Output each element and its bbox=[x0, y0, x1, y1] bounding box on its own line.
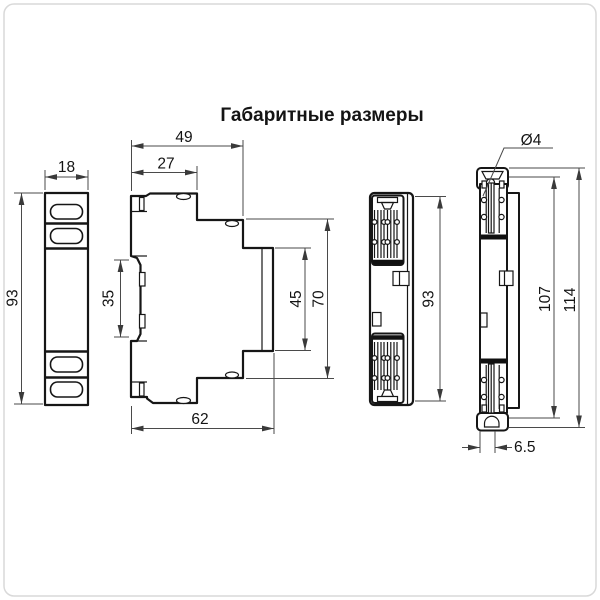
dim-label-70: 70 bbox=[311, 290, 328, 308]
terminal-slot bbox=[51, 357, 83, 372]
case-latch bbox=[373, 313, 382, 327]
dimension-drawing: Габаритные размеры 18 93 bbox=[0, 0, 600, 600]
dim-front-height: 93 bbox=[5, 193, 44, 404]
front-view bbox=[45, 193, 88, 405]
dim-label-45: 45 bbox=[288, 290, 305, 307]
screw-head bbox=[378, 198, 398, 203]
screw-head-oval bbox=[177, 194, 191, 200]
dim-label-35: 35 bbox=[101, 290, 118, 307]
dim-label-62: 62 bbox=[191, 411, 208, 428]
edge-view bbox=[477, 168, 519, 431]
din-clip-nub bbox=[140, 273, 146, 287]
screw-slot bbox=[140, 198, 145, 211]
case-latch bbox=[393, 272, 409, 286]
screw-head bbox=[378, 397, 398, 402]
screw-head-oval bbox=[226, 221, 239, 227]
mounting-tab-bottom bbox=[477, 413, 508, 431]
dim-label-114: 114 bbox=[562, 287, 579, 312]
dim-label-49: 49 bbox=[175, 129, 192, 146]
dim-side-step-width: 27 bbox=[132, 156, 198, 191]
dim-label-93-rear: 93 bbox=[421, 290, 438, 307]
dim-label-18: 18 bbox=[58, 159, 75, 176]
dim-edge-foot-depth: 6.5 bbox=[462, 431, 536, 456]
din-clip-nub bbox=[140, 315, 146, 329]
dim-label-d4: Ø4 bbox=[521, 132, 542, 149]
dim-rear-height: 93 bbox=[415, 197, 446, 402]
dim-label-107: 107 bbox=[537, 286, 554, 312]
drawing-title: Габаритные размеры bbox=[220, 105, 423, 126]
dim-label-93-front: 93 bbox=[5, 289, 22, 306]
dim-side-front-height: 45 bbox=[275, 248, 311, 351]
dim-label-27: 27 bbox=[157, 156, 174, 173]
dim-side-clip-span: 35 bbox=[101, 260, 130, 337]
terminal-slot bbox=[51, 382, 83, 397]
dim-label-6-5: 6.5 bbox=[514, 439, 536, 456]
drawing-canvas: Габаритные размеры 18 93 bbox=[0, 0, 600, 600]
side-view bbox=[131, 194, 273, 404]
dim-front-width: 18 bbox=[45, 159, 88, 190]
screw-slot bbox=[140, 383, 145, 396]
terminal-slot bbox=[51, 229, 83, 244]
side-profile bbox=[131, 194, 273, 404]
rear-top-terminal bbox=[372, 196, 404, 266]
rear-view bbox=[370, 193, 413, 405]
screw-head-oval bbox=[226, 372, 239, 378]
case-latch bbox=[500, 271, 514, 286]
screw-head-oval bbox=[177, 398, 191, 404]
terminal-slot bbox=[51, 205, 83, 220]
rear-bottom-terminal bbox=[372, 334, 404, 404]
edge-flange bbox=[507, 193, 519, 408]
case-latch bbox=[481, 313, 488, 327]
